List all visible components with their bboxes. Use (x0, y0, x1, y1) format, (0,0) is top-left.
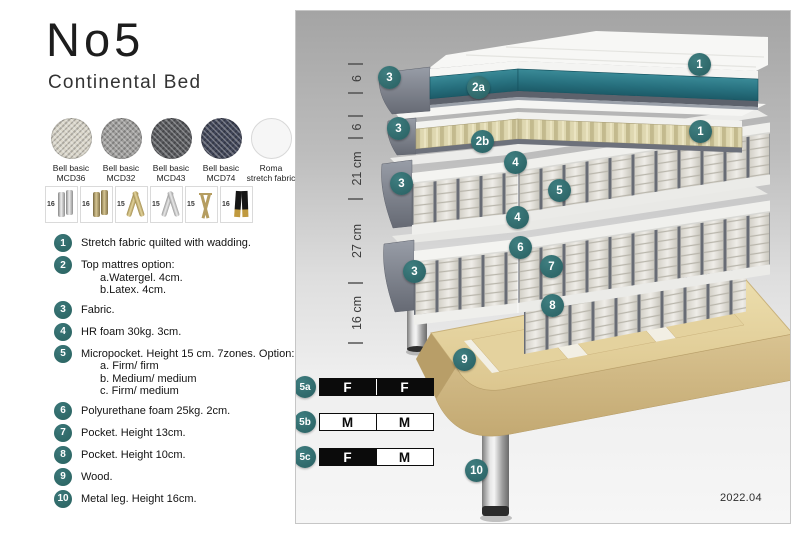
feature-number-badge: 5 (54, 345, 72, 363)
feature-item: 2 Top mattres option: a.Watergel. 4cm. b… (44, 256, 306, 297)
dimension-label: 6 (350, 123, 364, 130)
leg-height-label: 16 (47, 201, 57, 208)
leg-cylinder-brass-icon (92, 189, 111, 220)
fabric-name: Bell basic (146, 163, 196, 173)
firmness-table: F M (319, 448, 434, 466)
diagram-panel: 6 6 21 cm 27 cm 16 cm (295, 10, 791, 524)
firmness-table: M M (319, 413, 434, 431)
feature-text: Top mattres option: a.Watergel. 4cm. b.L… (81, 256, 183, 297)
callout-2a: 2a (467, 76, 490, 99)
fabric-swatch: Bell basic MCD36 (46, 118, 96, 183)
feature-text: Stretch fabric quilted with wadding. (81, 234, 251, 252)
feature-subline: c. Firm/ medium (100, 385, 294, 398)
feature-line: Micropocket. Height 15 cm. 7zones. Optio… (81, 348, 294, 361)
callout-7: 7 (540, 255, 563, 278)
feature-line: Metal leg. Height 16cm. (81, 493, 197, 506)
feature-line: Top mattres option: (81, 259, 183, 272)
fabric-code: MCD74 (196, 173, 246, 183)
firmness-cell: M (320, 414, 376, 430)
callout-8: 8 (541, 294, 564, 317)
callout-3-b: 3 (387, 117, 410, 140)
feature-item: 4 HR foam 30kg. 3cm. (44, 323, 306, 341)
feature-text: Pocket. Height 13cm. (81, 424, 186, 442)
dimension-label: 21 cm (350, 151, 364, 185)
feature-number-badge: 4 (54, 323, 72, 341)
firmness-row-5b: 5b M M (295, 411, 434, 433)
feature-line: Pocket. Height 10cm. (81, 449, 186, 462)
feature-text: Pocket. Height 10cm. (81, 446, 186, 464)
feature-text: HR foam 30kg. 3cm. (81, 323, 181, 341)
feature-subline: a. Firm/ firm (100, 360, 294, 373)
fabric-swatch: Roma stretch fabric (246, 118, 296, 183)
fabric-swatch-label: Bell basic MCD43 (146, 163, 196, 183)
feature-text: Polyurethane foam 25kg. 2cm. (81, 402, 230, 420)
leg-twisted-silver-icon (162, 189, 181, 220)
leg-height-label: 16 (222, 201, 232, 208)
firmness-cell: F (320, 449, 376, 465)
fabric-swatch: Bell basic MCD43 (146, 118, 196, 183)
leg-twisted-gold-icon (127, 189, 146, 220)
fabric-code: MCD32 (96, 173, 146, 183)
feature-item: 9 Wood. (44, 468, 306, 486)
feature-text: Metal leg. Height 16cm. (81, 490, 197, 508)
topper-watergel-2a (379, 31, 768, 114)
feature-number-badge: 9 (54, 468, 72, 486)
fabric-swatch-label: Bell basic MCD74 (196, 163, 246, 183)
dimension-label: 27 cm (350, 224, 364, 258)
page-subtitle: Continental Bed (48, 72, 201, 94)
fabric-code: MCD36 (46, 173, 96, 183)
callout-3-d: 3 (403, 260, 426, 283)
feature-subline: a.Watergel. 4cm. (100, 272, 183, 285)
feature-text: Wood. (81, 468, 113, 486)
leg-options-row: 16 16 15 15 15 16 (45, 186, 253, 223)
feature-number-badge: 7 (54, 424, 72, 442)
feature-item: 1 Stretch fabric quilted with wadding. (44, 234, 306, 252)
leg-height-label: 15 (117, 201, 127, 208)
fabric-swatch: Bell basic MCD32 (96, 118, 146, 183)
fabric-swatch-circle (101, 118, 142, 159)
fabric-code: MCD43 (146, 173, 196, 183)
firmness-cell: M (376, 414, 433, 430)
fabric-swatch-circle (251, 118, 292, 159)
feature-list: 1 Stretch fabric quilted with wadding. 2… (44, 234, 306, 512)
feature-line: HR foam 30kg. 3cm. (81, 326, 181, 339)
feature-text: Fabric. (81, 301, 115, 319)
fabric-swatch-circle (151, 118, 192, 159)
feature-subline: b. Medium/ medium (100, 373, 294, 386)
leg-height-label: 15 (187, 201, 197, 208)
feature-line: Pocket. Height 13cm. (81, 427, 186, 440)
feature-number-badge: 6 (54, 402, 72, 420)
firmness-cell: M (376, 449, 433, 465)
firmness-cell: F (320, 379, 376, 395)
dimension-label: 16 cm (350, 296, 364, 330)
firmness-row-5c: 5c F M (295, 446, 434, 468)
callout-4-lower: 4 (506, 206, 529, 229)
feature-line: Polyurethane foam 25kg. 2cm. (81, 405, 230, 418)
feature-item: 5 Micropocket. Height 15 cm. 7zones. Opt… (44, 345, 306, 398)
callout-10: 10 (465, 459, 488, 482)
callout-4-upper: 4 (504, 151, 527, 174)
fabric-swatch-label: Bell basic MCD32 (96, 163, 146, 183)
firmness-row-5a: 5a F F (295, 376, 434, 398)
callout-3-a: 3 (378, 66, 401, 89)
fabric-name: Bell basic (46, 163, 96, 173)
leg-hairpin-icon (197, 189, 216, 220)
feature-item: 7 Pocket. Height 13cm. (44, 424, 306, 442)
firmness-cell: F (376, 379, 433, 395)
leg-height-label: 15 (152, 201, 162, 208)
fabric-swatch-circle (201, 118, 242, 159)
feature-line: Wood. (81, 471, 113, 484)
dimension-label: 6 (350, 75, 364, 82)
feature-number-badge: 2 (54, 256, 72, 274)
leg-cylinder-chrome-icon (57, 189, 76, 220)
version-label: 2022.04 (720, 492, 762, 504)
leg-option: 16 (45, 186, 78, 223)
feature-number-badge: 8 (54, 446, 72, 464)
feature-number-badge: 1 (54, 234, 72, 252)
feature-item: 8 Pocket. Height 10cm. (44, 446, 306, 464)
feature-item: 6 Polyurethane foam 25kg. 2cm. (44, 402, 306, 420)
page-title: No5 (46, 12, 144, 67)
leg-option: 16 (80, 186, 113, 223)
fabric-code: stretch fabric (246, 173, 296, 183)
feature-item: 10 Metal leg. Height 16cm. (44, 490, 306, 508)
leg-black-gold-icon (232, 189, 251, 220)
callout-6: 6 (509, 236, 532, 259)
leg-option: 15 (185, 186, 218, 223)
leg-option: 15 (115, 186, 148, 223)
callout-2b: 2b (471, 130, 494, 153)
product-spec-sheet: { "header": { "title": "No5", "subtitle"… (0, 0, 800, 533)
callout-9: 9 (453, 348, 476, 371)
fabric-swatch-row: Bell basic MCD36 Bell basic MCD32 Bell b… (46, 118, 300, 183)
callout-1-mid: 1 (689, 120, 712, 143)
dimension-labels: 6 6 21 cm 27 cm 16 cm (350, 75, 364, 330)
fabric-swatch: Bell basic MCD74 (196, 118, 246, 183)
feature-line: Stretch fabric quilted with wadding. (81, 237, 251, 250)
leg-option: 16 (220, 186, 253, 223)
feature-text: Micropocket. Height 15 cm. 7zones. Optio… (81, 345, 294, 398)
leg-option: 15 (150, 186, 183, 223)
fabric-swatch-circle (51, 118, 92, 159)
feature-number-badge: 3 (54, 301, 72, 319)
feature-subline: b.Latex. 4cm. (100, 284, 183, 297)
callout-3-c: 3 (390, 172, 413, 195)
callout-5: 5 (548, 179, 571, 202)
leg-height-label: 16 (82, 201, 92, 208)
feature-line: Fabric. (81, 304, 115, 317)
feature-number-badge: 10 (54, 490, 72, 508)
fabric-swatch-label: Bell basic MCD36 (46, 163, 96, 183)
firmness-table: F F (319, 378, 434, 396)
fabric-name: Roma (246, 163, 296, 173)
fabric-name: Bell basic (96, 163, 146, 173)
callout-1-top: 1 (688, 53, 711, 76)
fabric-swatch-label: Roma stretch fabric (246, 163, 296, 183)
feature-item: 3 Fabric. (44, 301, 306, 319)
fabric-name: Bell basic (196, 163, 246, 173)
